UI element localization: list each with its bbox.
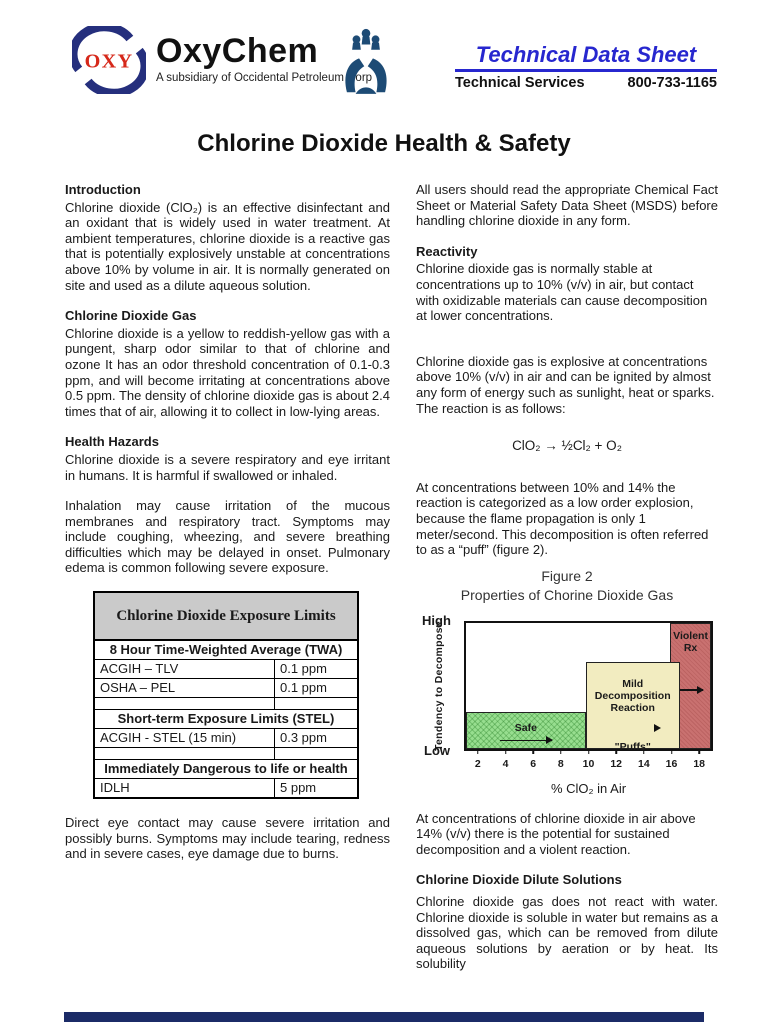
page-title: Chlorine Dioxide Health & Safety [0, 136, 768, 152]
table-cell-value: 5 ppm [275, 779, 359, 799]
table-row: IDLH 5 ppm [94, 779, 358, 799]
exposure-limits-table: Chlorine Dioxide Exposure Limits 8 Hour … [93, 591, 359, 799]
table-group-header-twa: 8 Hour Time-Weighted Average (TWA) [94, 640, 358, 660]
figure2-chart: High Low Tendency to Decompose Violent R… [416, 611, 718, 797]
table-spacer-row [94, 698, 358, 710]
x-tick-mark [560, 749, 562, 754]
table-group-header-stel: Short-term Exposure Limits (STEL) [94, 710, 358, 729]
spacer-cell [94, 748, 275, 760]
right-arrow-icon [500, 740, 552, 742]
tds-services-row: Technical Services 800-733-1165 [455, 76, 717, 92]
x-tick-mark [698, 749, 700, 754]
x-tick-label: 16 [666, 757, 678, 773]
intro-heading: Introduction [65, 182, 390, 198]
puff-paragraph: At concentrations between 10% and 14% th… [416, 480, 718, 558]
x-axis-title: % ClO₂ in Air [464, 781, 713, 797]
figure-number: Figure 2 [416, 567, 718, 586]
x-tick-label: 6 [530, 757, 536, 773]
spacer-cell [275, 748, 359, 760]
region-label: Rx [671, 642, 710, 654]
x-tick-label: 8 [558, 757, 564, 773]
region-label: Violent [671, 630, 710, 642]
x-tick-label: 4 [503, 757, 509, 773]
hazards-paragraph-2: Inhalation may cause irritation of the m… [65, 498, 390, 576]
body-columns: Introduction Chlorine dioxide (ClO₂) is … [65, 182, 718, 987]
table-group-header-idlh: Immediately Dangerous to life or health [94, 760, 358, 779]
hazards-paragraph-1: Chlorine dioxide is a severe respiratory… [65, 452, 390, 483]
users-paragraph: All users should read the appropriate Ch… [416, 182, 718, 229]
spacer-cell [94, 698, 275, 710]
intro-paragraph: Chlorine dioxide (ClO₂) is an effective … [65, 200, 390, 294]
oxy-logo-text: OXY [85, 50, 134, 72]
x-tick-label: 10 [583, 757, 595, 773]
tds-services-label: Technical Services [455, 76, 585, 92]
table-cell-label: ACGIH - STEL (15 min) [94, 729, 275, 748]
reactivity-heading: Reactivity [416, 244, 718, 260]
x-tick-mark [532, 749, 534, 754]
x-tick-mark [505, 749, 507, 754]
tds-title: Technical Data Sheet [455, 42, 717, 72]
x-tick-mark [671, 749, 673, 754]
region-label: Mild [622, 678, 643, 690]
table-row: ACGIH – TLV 0.1 ppm [94, 660, 358, 679]
x-tick-label: 12 [610, 757, 622, 773]
table-cell-label: IDLH [94, 779, 275, 799]
y-axis-title: Tendency to Decompose [432, 611, 448, 761]
decomposition-equation: ClO₂ → ½Cl₂ + O₂ [416, 438, 718, 454]
oxy-logo-icon: OXY [72, 26, 146, 94]
table-cell-value: 0.1 ppm [275, 660, 359, 679]
x-tick-label: 18 [693, 757, 705, 773]
explosive-paragraph: Chlorine dioxide gas is explosive at con… [416, 354, 718, 416]
right-column: All users should read the appropriate Ch… [416, 182, 718, 987]
spacer-cell [275, 698, 359, 710]
table-cell-label: OSHA – PEL [94, 679, 275, 698]
x-tick-mark [588, 749, 590, 754]
table-spacer-row [94, 748, 358, 760]
reactivity-paragraph: Chlorine dioxide gas is normally stable … [416, 261, 718, 323]
x-tick-label: 2 [475, 757, 481, 773]
x-tick-label: 14 [638, 757, 650, 773]
region-label: Reaction [611, 702, 655, 714]
document-page: OXY OxyChem A subsidiary of Occidental P… [0, 0, 768, 1024]
figure-caption: Figure 2 Properties of Chorine Dioxide G… [416, 567, 718, 605]
table-title: Chlorine Dioxide Exposure Limits [94, 592, 358, 640]
plot-area: Tendency to Decompose Violent Rx Mild De… [464, 621, 713, 751]
right-arrow-icon [679, 689, 703, 691]
figure-title: Properties of Chorine Dioxide Gas [416, 586, 718, 605]
table-cell-value: 0.3 ppm [275, 729, 359, 748]
tds-header: Technical Data Sheet Technical Services … [455, 42, 717, 92]
region-label: Decomposition [595, 690, 671, 702]
region-sublabel: "Puffs" [615, 740, 651, 756]
oxychem-logo: OXY OxyChem A subsidiary of Occidental P… [72, 26, 372, 94]
tds-phone: 800-733-1165 [628, 76, 718, 92]
table-row: OSHA – PEL 0.1 ppm [94, 679, 358, 698]
hazards-heading: Health Hazards [65, 434, 390, 450]
table-cell-value: 0.1 ppm [275, 679, 359, 698]
x-tick-labels: 24681012141618 [464, 756, 713, 770]
left-column: Introduction Chlorine dioxide (ClO₂) is … [65, 182, 390, 987]
table-cell-label: ACGIH – TLV [94, 660, 275, 679]
gas-heading: Chlorine Dioxide Gas [65, 308, 390, 324]
region-mild-decomposition: Mild Decomposition Reaction "Puffs" [586, 662, 680, 749]
dilute-paragraph: Chlorine dioxide gas does not react with… [416, 894, 718, 972]
above14-paragraph: At concentrations of chlorine dioxide in… [416, 811, 718, 858]
region-safe: Safe [466, 712, 586, 749]
dilute-heading: Chlorine Dioxide Dilute Solutions [416, 872, 718, 888]
page-bottom-bar [64, 1012, 704, 1022]
gas-paragraph: Chlorine dioxide is a yellow to reddish-… [65, 326, 390, 420]
table-row: ACGIH - STEL (15 min) 0.3 ppm [94, 729, 358, 748]
x-tick-mark [477, 749, 479, 754]
eye-contact-paragraph: Direct eye contact may cause severe irri… [65, 815, 390, 862]
region-label: Safe [515, 722, 537, 734]
hands-holding-people-icon [340, 26, 392, 96]
